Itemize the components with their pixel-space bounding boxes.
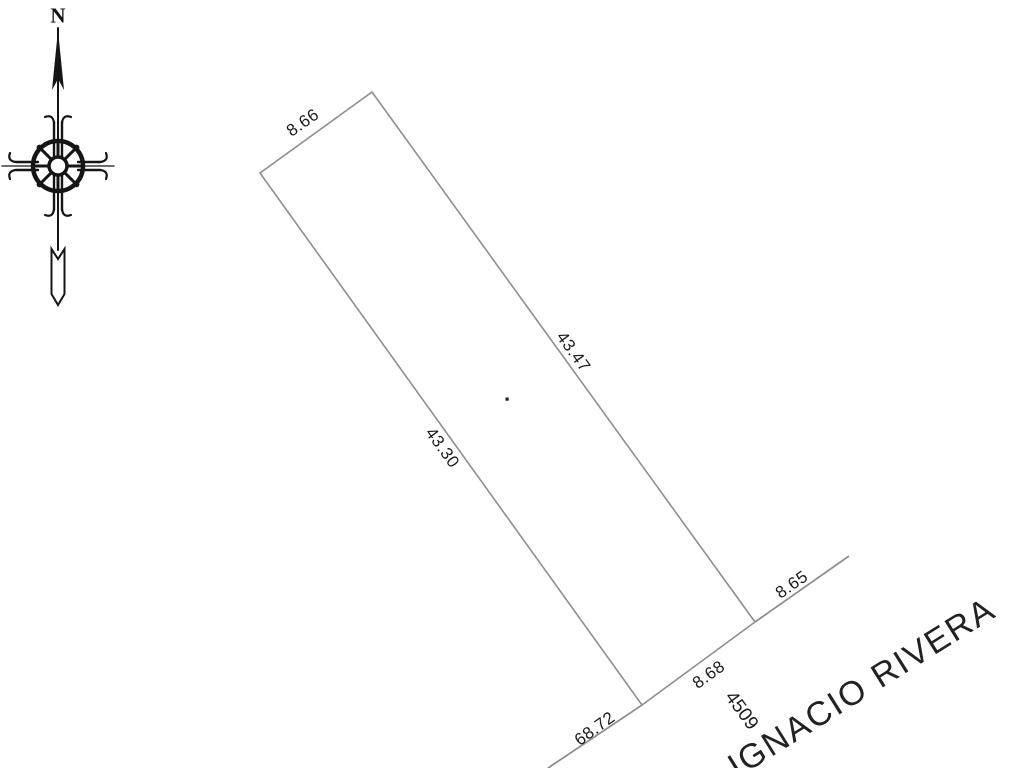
compass-curl [62,209,71,216]
compass-curl [100,153,107,162]
compass-north-label: N [50,4,65,29]
compass-curl [100,170,107,179]
compass-curl [9,170,16,179]
compass-curl [9,153,16,162]
compass-curl [45,116,54,123]
survey-point-dot [506,398,509,401]
compass-rose-icon [2,28,114,305]
compass-fletch-icon [52,249,65,305]
compass-curl [62,116,71,123]
plan-drawing [0,0,1024,768]
survey-plan-canvas: N 8.66 43.47 43.30 8.68 8.65 68.72 4509 … [0,0,1024,768]
compass-curl [45,209,54,216]
